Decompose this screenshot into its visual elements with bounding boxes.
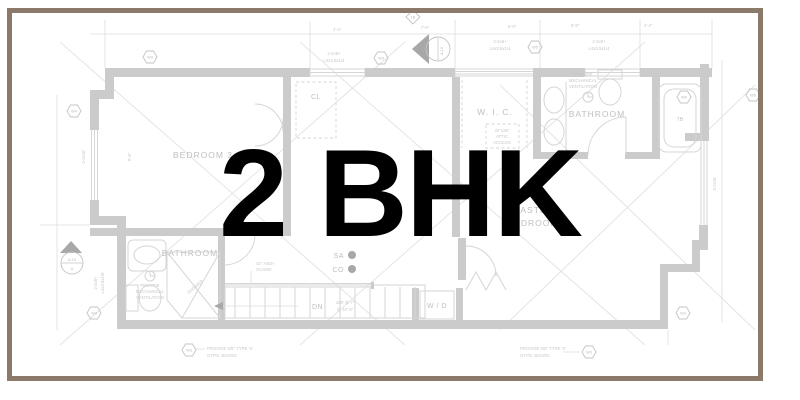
- overlay-title: 2 BHK: [0, 0, 800, 394]
- screenshot-canvas: 4'-4" 7'-6" 5'-8" 8'-8" 4'-4" 9'-6" 2-2x…: [0, 0, 800, 400]
